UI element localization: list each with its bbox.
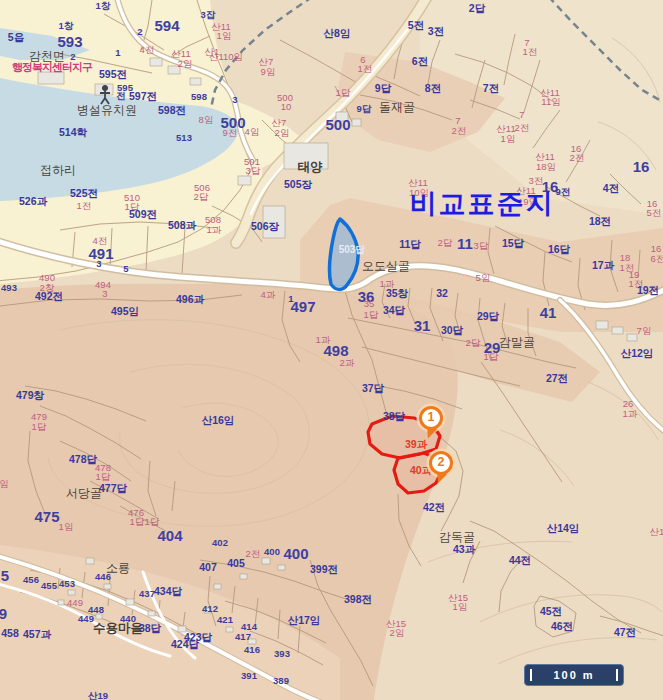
cadastral-map-view[interactable]: 1창3잡5941창25읍5934전1산1감천면산112임2행정복지센터지구595… [0, 0, 663, 700]
map-marker-1[interactable]: 1 [419, 406, 443, 430]
scale-bar: 100 m [524, 664, 624, 686]
map-markers-layer: 12 [0, 0, 663, 700]
map-marker-tail [425, 427, 437, 440]
map-marker-2[interactable]: 2 [429, 451, 453, 475]
map-marker-tail [435, 472, 447, 485]
scale-bar-label: 100 m [525, 669, 623, 681]
